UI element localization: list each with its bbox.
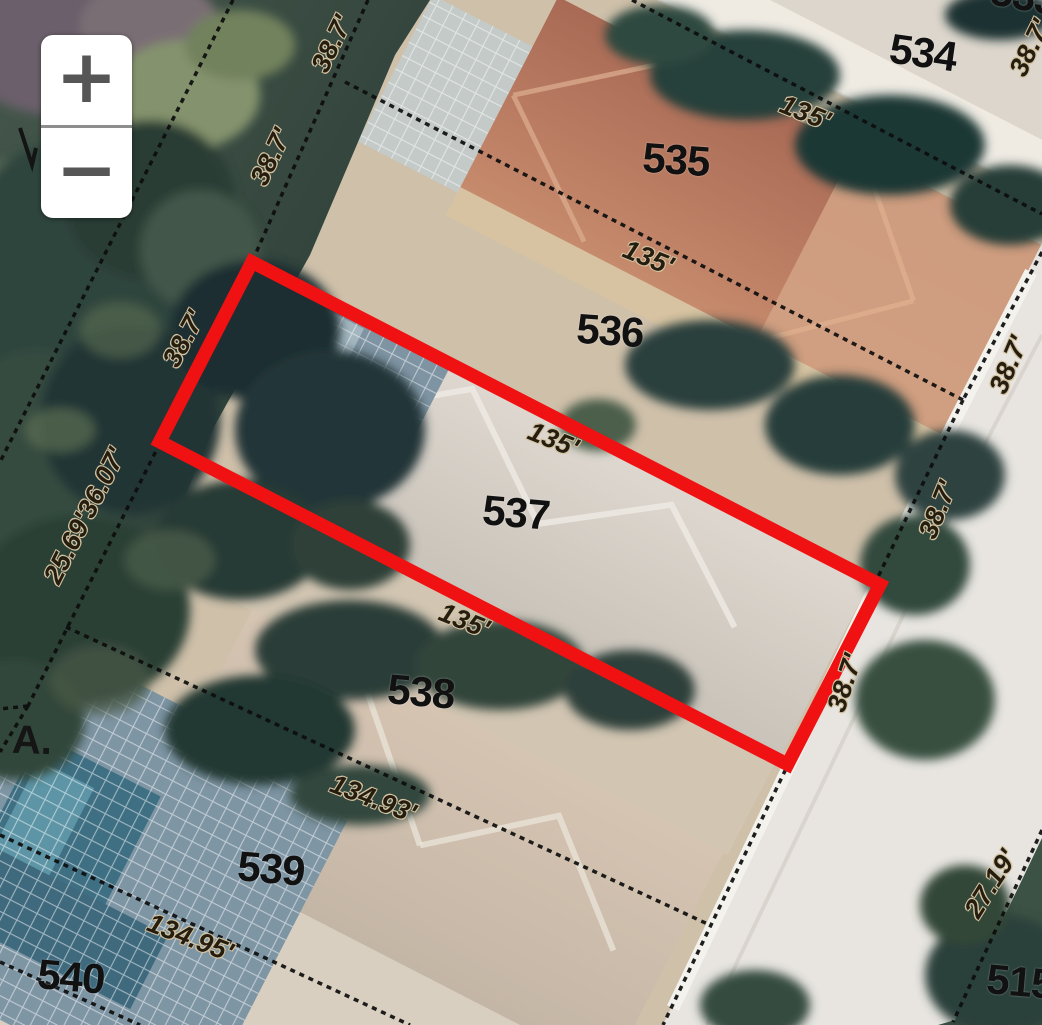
zoom-in-button[interactable]: + [41, 35, 132, 125]
plus-icon: + [55, 40, 117, 114]
minus-icon: − [55, 133, 117, 207]
zoom-out-button[interactable]: − [41, 128, 132, 218]
zoom-control: + − [41, 35, 132, 218]
aerial-basemap [0, 0, 1042, 1025]
map-viewport[interactable]: 533 534 535 536 537 538 539 540 515 135'… [0, 0, 1042, 1025]
